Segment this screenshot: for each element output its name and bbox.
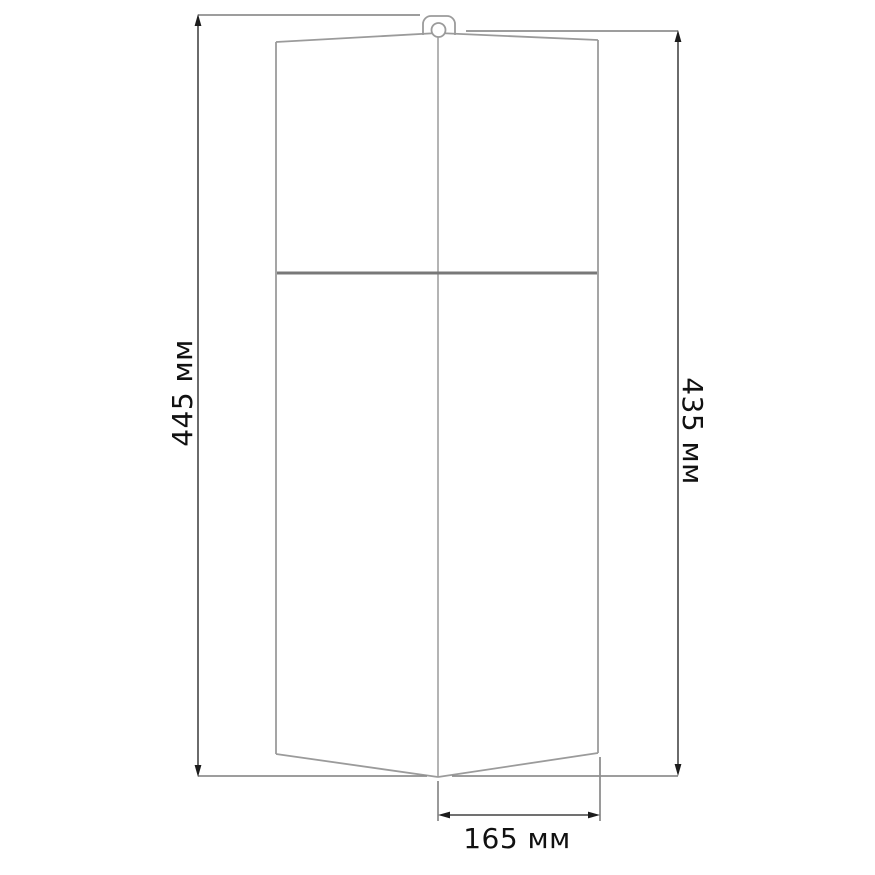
- object-bottom-right-edge: [438, 753, 598, 777]
- arrow-left-bottom-icon: [438, 812, 450, 819]
- object-top-right-edge: [438, 33, 598, 40]
- arrow-right-bottom-icon: [588, 812, 600, 819]
- diagram-canvas: 445 мм 435 мм 165 мм: [0, 0, 875, 875]
- arrow-down-right-icon: [675, 764, 682, 776]
- left-dimension-label: 445 мм: [169, 339, 197, 447]
- object-bottom-left-edge: [276, 754, 438, 777]
- technical-drawing: [0, 0, 875, 875]
- hanger-hole-icon: [432, 23, 446, 37]
- right-dimension-label: 435 мм: [678, 377, 706, 485]
- object-top-left-edge: [276, 33, 438, 42]
- object-outline: [276, 16, 598, 777]
- bottom-dimension-label: 165 мм: [463, 825, 571, 853]
